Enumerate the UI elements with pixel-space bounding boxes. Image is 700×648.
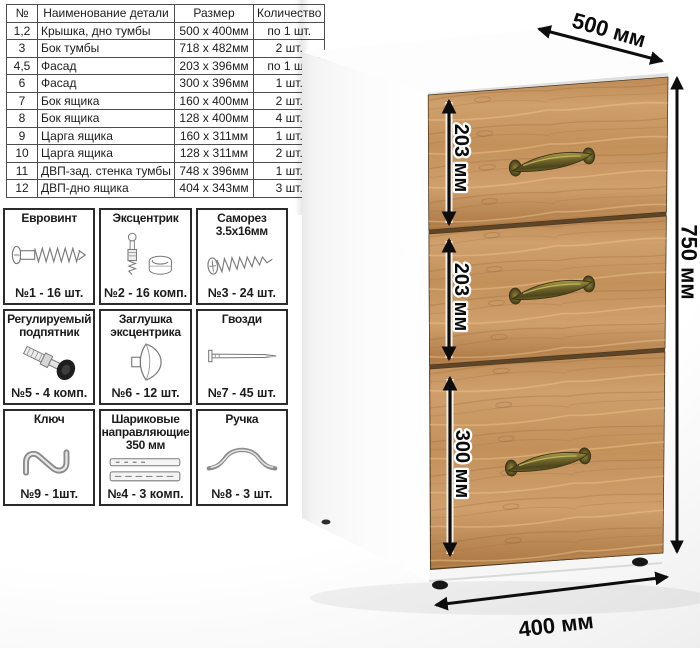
hardware-item-nails: Гвозди №7 - 45 шт. <box>196 309 288 406</box>
part-size: 128 x 311мм <box>175 145 254 163</box>
part-size: 203 x 396мм <box>175 57 254 75</box>
part-num: 11 <box>7 162 38 180</box>
hardware-count: №4 - 3 комп. <box>107 487 183 502</box>
part-row: 10 Царга ящика 128 x 311мм 2 шт. <box>7 145 325 163</box>
part-size: 404 x 343мм <box>175 180 254 198</box>
hardware-count: №9 - 1шт. <box>20 487 78 502</box>
hardware-title: Саморез 3.5х16мм <box>199 212 285 238</box>
part-num: 8 <box>7 110 38 128</box>
hardware-item-eurovint: Евровинт №1 - 16 шт. <box>3 208 95 305</box>
header-size: Размер <box>175 5 254 23</box>
hardware-count: №5 - 4 комп. <box>11 386 87 401</box>
hardware-title: Ручка <box>225 413 258 426</box>
hardware-title: Гвозди <box>222 313 262 326</box>
part-row: 6 Фасад 300 x 396мм 1 шт. <box>7 75 325 93</box>
parts-table: № Наименование детали Размер Количество … <box>6 4 325 198</box>
cabinet-illustration: 500 мм 750 мм 400 мм 203 мм 203 мм 300 м… <box>300 0 700 648</box>
ball-bearing-slides-icon <box>105 452 185 487</box>
part-size: 160 x 311мм <box>175 127 254 145</box>
hardware-grid: Евровинт №1 - 16 шт. Эксцентрик <box>3 208 288 506</box>
hardware-count: №7 - 45 шт. <box>208 386 276 401</box>
confirmat-screw-icon <box>9 225 89 286</box>
part-size: 128 x 400мм <box>175 110 254 128</box>
hardware-title: Заглушка эксцентрика <box>102 313 188 339</box>
part-name: Фасад <box>38 75 175 93</box>
part-size: 160 x 400мм <box>175 92 254 110</box>
hardware-item-key: Ключ №9 - 1шт. <box>3 409 95 506</box>
part-size: 500 x 400мм <box>175 22 254 40</box>
part-name: Бок ящика <box>38 110 175 128</box>
part-name: Царга ящика <box>38 127 175 145</box>
part-name: ДВП-дно ящика <box>38 180 175 198</box>
z-key-icon <box>13 426 85 487</box>
drawer-arrows <box>449 101 450 555</box>
hardware-title: Шариковые направляющие 350 мм <box>102 413 190 452</box>
part-size: 748 x 396мм <box>175 162 254 180</box>
hardware-item-cam-lock: Эксцентрик №2 - 16 комп. <box>99 208 191 305</box>
hardware-count: №2 - 16 комп. <box>104 286 187 301</box>
hardware-count: №1 - 16 шт. <box>15 286 83 301</box>
part-size: 300 x 396мм <box>175 75 254 93</box>
part-row: 7 Бок ящика 160 x 400мм 2 шт. <box>7 92 325 110</box>
hardware-item-screw: Саморез 3.5х16мм №3 - 24 шт. <box>196 208 288 305</box>
self-tapping-screw-icon <box>203 238 281 286</box>
part-num: 9 <box>7 127 38 145</box>
part-num: 6 <box>7 75 38 93</box>
part-row: 9 Царга ящика 160 x 311мм 1 шт. <box>7 127 325 145</box>
cam-lock-icon <box>105 225 185 286</box>
hardware-item-slides: Шариковые направляющие 350 мм №4 - 3 ком… <box>99 409 191 506</box>
part-name: Бок тумбы <box>38 40 175 58</box>
dimension-height-label: 750 мм <box>677 224 700 299</box>
hardware-count: №3 - 24 шт. <box>208 286 276 301</box>
part-row: 11 ДВП-зад. стенка тумбы 748 x 396мм 1 ш… <box>7 162 325 180</box>
part-row: 12 ДВП-дно ящика 404 x 343мм 3 шт. <box>7 180 325 198</box>
part-num: 4,5 <box>7 57 38 75</box>
part-row: 1,2 Крышка, дно тумбы 500 x 400мм по 1 ш… <box>7 22 325 40</box>
hardware-item-handle: Ручка №8 - 3 шт. <box>196 409 288 506</box>
part-row: 3 Бок тумбы 718 x 482мм 2 шт. <box>7 40 325 58</box>
part-name: Фасад <box>38 57 175 75</box>
header-num: № <box>7 5 38 23</box>
adjustable-foot-icon <box>9 339 89 387</box>
drawer-middle-label: 203 мм <box>450 263 472 332</box>
bow-handle-icon <box>202 426 282 487</box>
assembly-sheet: № Наименование детали Размер Количество … <box>0 0 700 648</box>
hardware-count: №6 - 12 шт. <box>111 386 179 401</box>
part-num: 10 <box>7 145 38 163</box>
part-num: 7 <box>7 92 38 110</box>
drawer-top-label: 203 мм <box>450 124 472 193</box>
hardware-item-adjustable-foot: Регулируемый подпятник <box>3 309 95 406</box>
part-name: Бок ящика <box>38 92 175 110</box>
nail-icon <box>202 326 282 387</box>
part-row: 4,5 Фасад 203 x 396мм по 1 шт. <box>7 57 325 75</box>
part-size: 718 x 482мм <box>175 40 254 58</box>
part-name: Крышка, дно тумбы <box>38 22 175 40</box>
hardware-item-cam-cap: Заглушка эксцентрика №6 - 12 шт. <box>99 309 191 406</box>
part-num: 12 <box>7 180 38 198</box>
hardware-title: Ключ <box>34 413 65 426</box>
part-name: ДВП-зад. стенка тумбы <box>38 162 175 180</box>
part-num: 3 <box>7 40 38 58</box>
hardware-title: Регулируемый подпятник <box>6 313 92 339</box>
parts-table-header-row: № Наименование детали Размер Количество <box>7 5 325 23</box>
cam-cap-icon <box>110 339 180 387</box>
hardware-count: №8 - 3 шт. <box>211 487 272 502</box>
part-num: 1,2 <box>7 22 38 40</box>
hardware-title: Эксцентрик <box>113 212 179 225</box>
part-row: 8 Бок ящика 128 x 400мм 4 шт. <box>7 110 325 128</box>
part-name: Царга ящика <box>38 145 175 163</box>
drawer-bottom-label: 300 мм <box>451 430 473 499</box>
hardware-title: Евровинт <box>21 212 77 225</box>
header-name: Наименование детали <box>38 5 175 23</box>
